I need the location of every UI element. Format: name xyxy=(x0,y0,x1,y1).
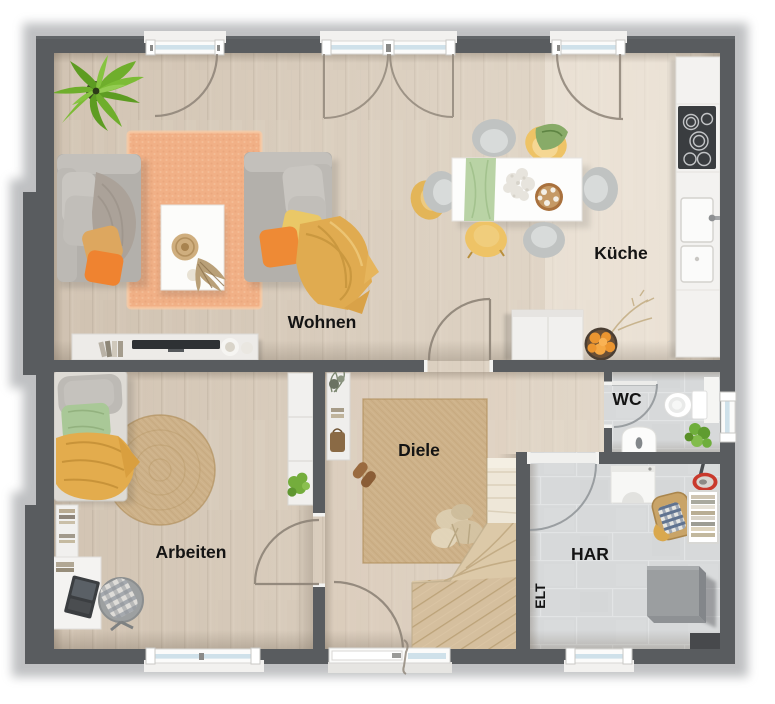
svg-text:Küche: Küche xyxy=(594,243,648,263)
svg-text:HAR: HAR xyxy=(571,544,609,564)
svg-text:ELT: ELT xyxy=(532,583,548,609)
svg-text:Arbeiten: Arbeiten xyxy=(156,542,227,562)
svg-text:WC: WC xyxy=(612,389,642,409)
svg-text:Diele: Diele xyxy=(398,440,440,460)
svg-text:Wohnen: Wohnen xyxy=(288,312,357,332)
